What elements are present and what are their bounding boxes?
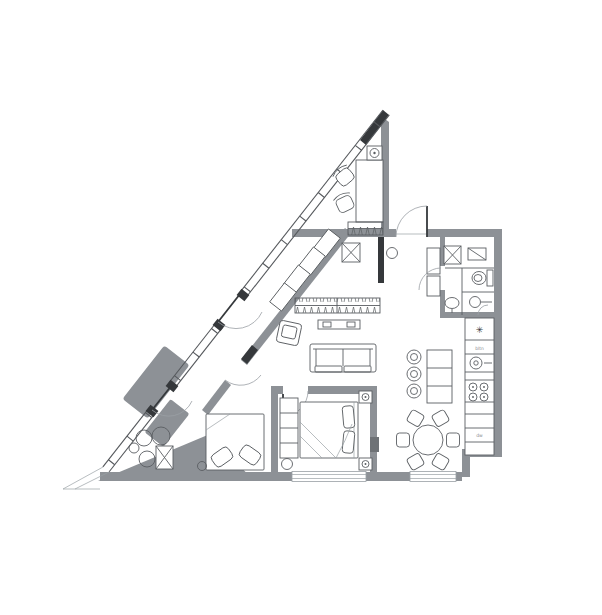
master-window <box>292 472 366 482</box>
fridge-snowflake-icon: ✳ <box>476 325 484 335</box>
dining-chair-5 <box>406 453 425 471</box>
balcony-door-leaf <box>218 294 240 322</box>
bar-stools <box>407 350 421 398</box>
dining-chair-4 <box>397 433 410 447</box>
oven-label: bltn <box>475 346 484 351</box>
dining-table <box>413 425 443 455</box>
tv-panel <box>370 437 379 452</box>
sofa <box>310 344 376 372</box>
dishwasher-label: dw <box>476 433 483 438</box>
dining-chair-3 <box>406 409 425 427</box>
toilet <box>472 270 493 286</box>
second-bedroom <box>198 414 265 471</box>
nightstand-bottom <box>359 458 372 470</box>
dining-chair-2 <box>431 409 450 427</box>
entrance-door-arc <box>396 206 427 237</box>
nightstand-top <box>359 391 372 403</box>
dining-window <box>410 472 456 482</box>
master-pouf <box>282 459 293 470</box>
washing-machine <box>444 246 461 264</box>
dining-set <box>397 409 460 471</box>
desk <box>356 160 383 222</box>
double-bed <box>300 402 358 458</box>
kitchen-dining: ✳ bltn dw <box>397 318 495 471</box>
tv-bench <box>318 320 360 329</box>
dining-chair-6 <box>431 453 450 471</box>
bedroom-diagonal-wall <box>202 380 231 415</box>
hall-divider-wall <box>378 237 384 283</box>
floor-plan: ✳ bltn dw <box>0 0 602 615</box>
dining-chair-1 <box>447 433 460 447</box>
bathroom-left-wall-bottom <box>440 290 445 312</box>
master-wardrobe <box>280 398 298 458</box>
bathroom <box>444 246 494 315</box>
entry-cabinet-top <box>427 248 440 274</box>
bathroom-bottom-wall <box>440 312 502 318</box>
bed2 <box>206 414 264 470</box>
terrace-pot-4 <box>129 443 139 453</box>
office-chair-2 <box>332 191 356 214</box>
living-room <box>310 320 376 372</box>
study-wardrobe <box>348 222 383 235</box>
entry-top-wall-right <box>427 229 502 237</box>
entry-pouf <box>387 248 398 259</box>
ceiling-light <box>367 146 382 160</box>
shaft-box-terrace <box>156 446 173 469</box>
entry-top-wall-left <box>389 229 396 237</box>
corridor-armchair <box>276 320 302 346</box>
right-step-wall-v <box>462 457 470 477</box>
bath-sink <box>445 298 459 314</box>
corridor-wardrobe <box>295 298 380 313</box>
master-bedroom <box>280 391 379 470</box>
study <box>331 146 383 235</box>
kitchen-island <box>427 350 452 403</box>
kitchen-counter: ✳ bltn dw <box>465 318 494 455</box>
entry-cabinet-bottom <box>427 276 440 296</box>
wc-sink <box>470 297 493 308</box>
boiler <box>468 248 486 260</box>
right-exterior-wall <box>494 237 502 449</box>
master-left-wall <box>271 386 278 472</box>
terrace-pot-1 <box>136 430 152 446</box>
shaft-box-entry <box>342 243 360 262</box>
floor-plan-canvas: ✳ bltn dw <box>0 0 602 615</box>
bedroom2-door-arc <box>225 375 261 385</box>
